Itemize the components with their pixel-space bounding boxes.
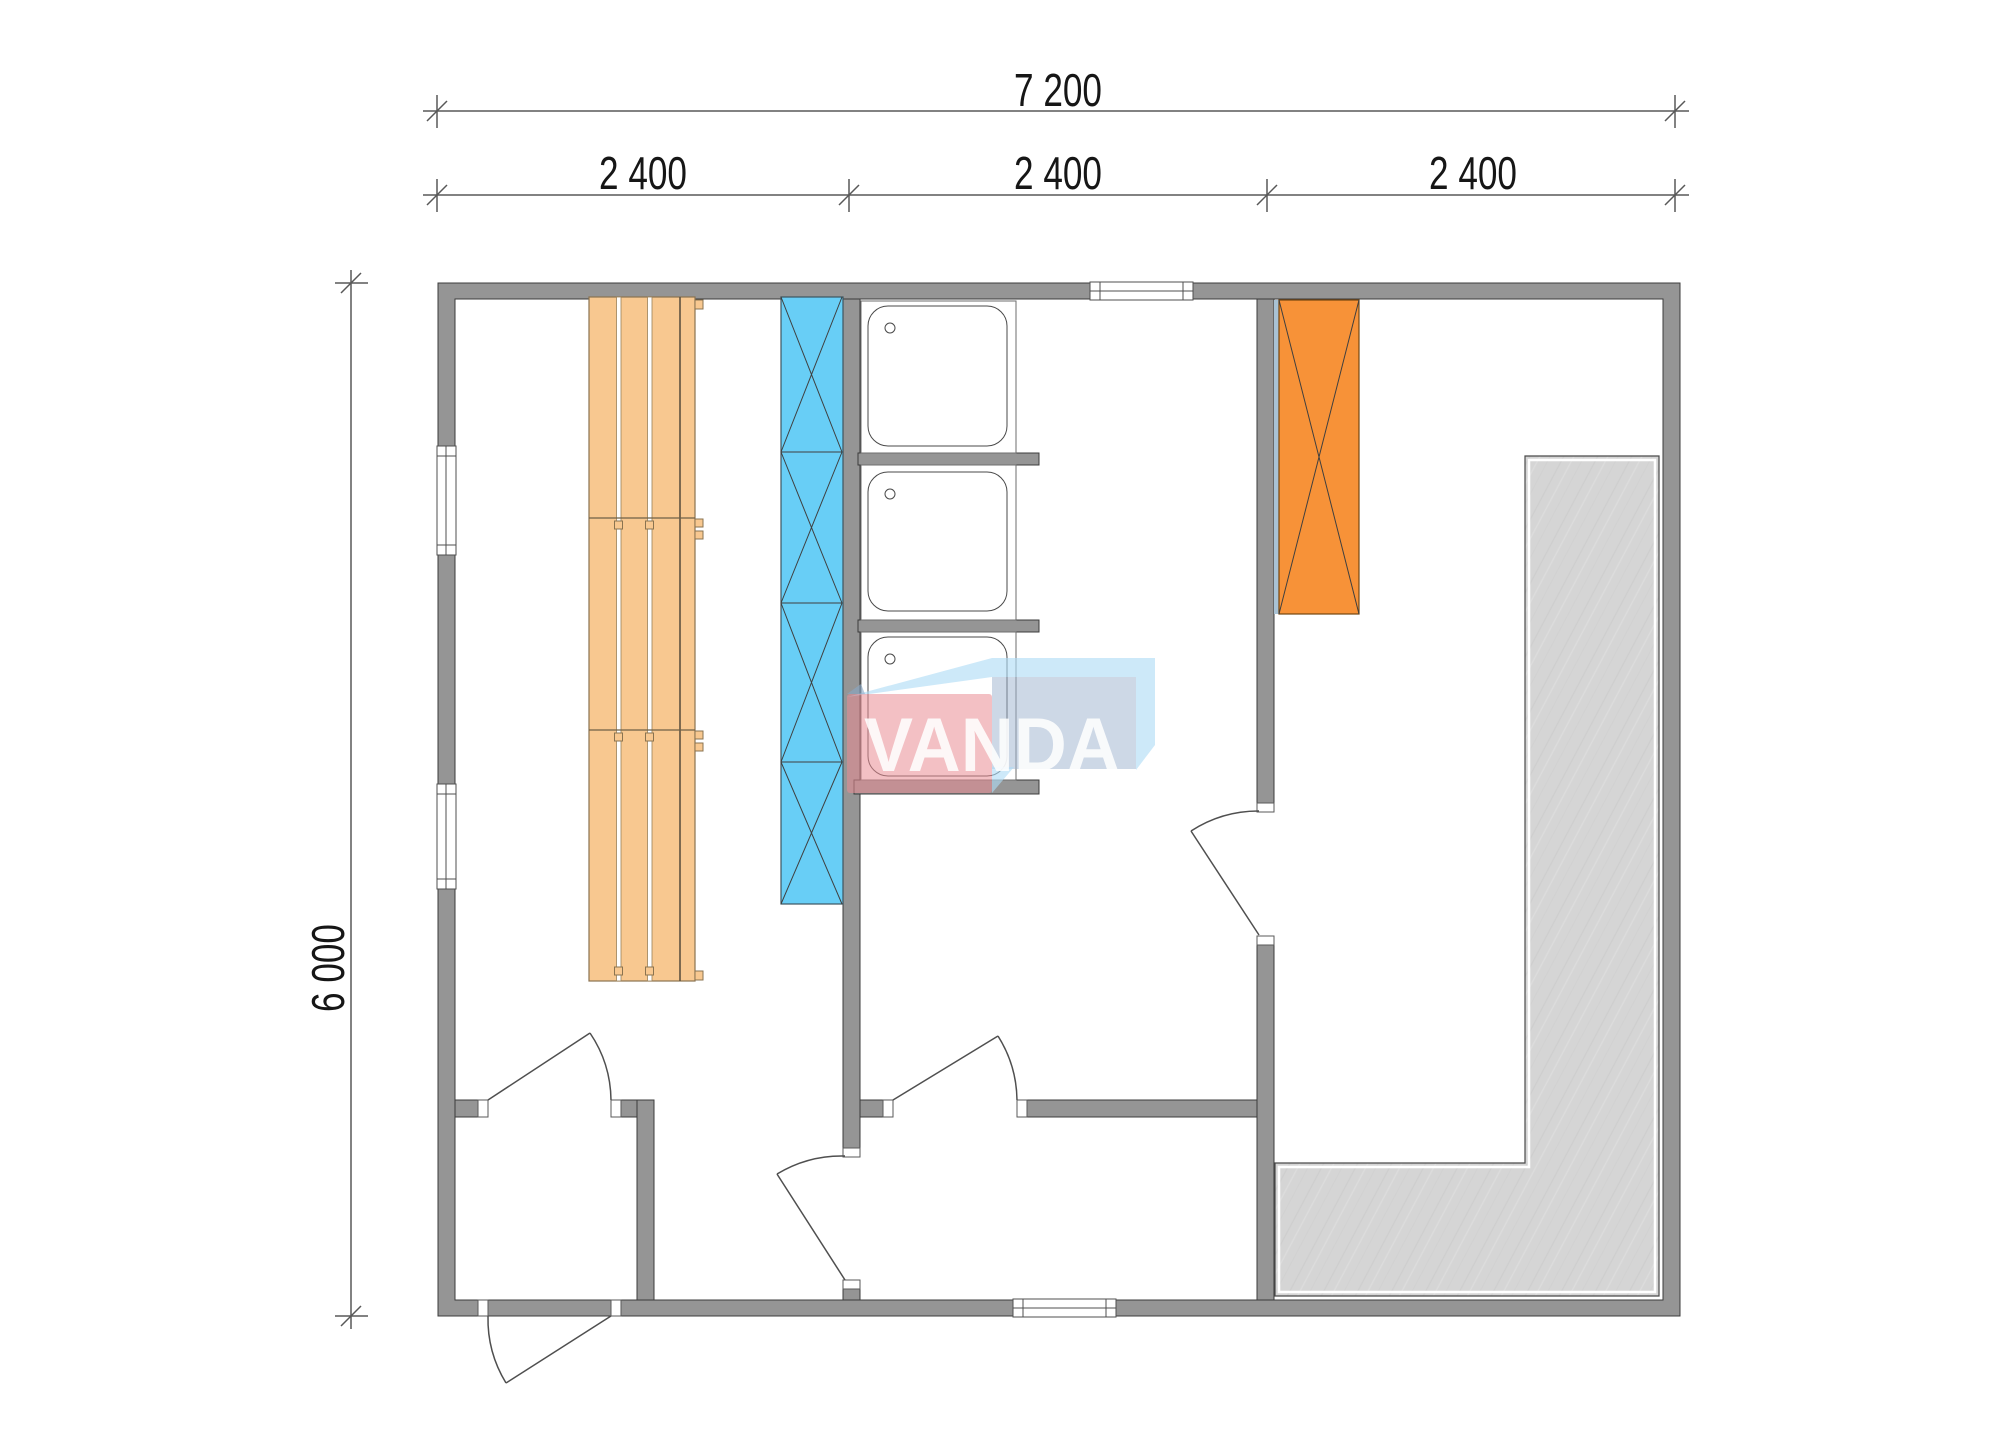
svg-text:2 400: 2 400 xyxy=(1014,147,1102,199)
svg-text:6 000: 6 000 xyxy=(302,924,354,1012)
svg-text:7 200: 7 200 xyxy=(1014,64,1102,116)
svg-text:VANDA: VANDA xyxy=(864,703,1120,788)
svg-text:2 400: 2 400 xyxy=(1429,147,1517,199)
svg-text:2 400: 2 400 xyxy=(599,147,687,199)
